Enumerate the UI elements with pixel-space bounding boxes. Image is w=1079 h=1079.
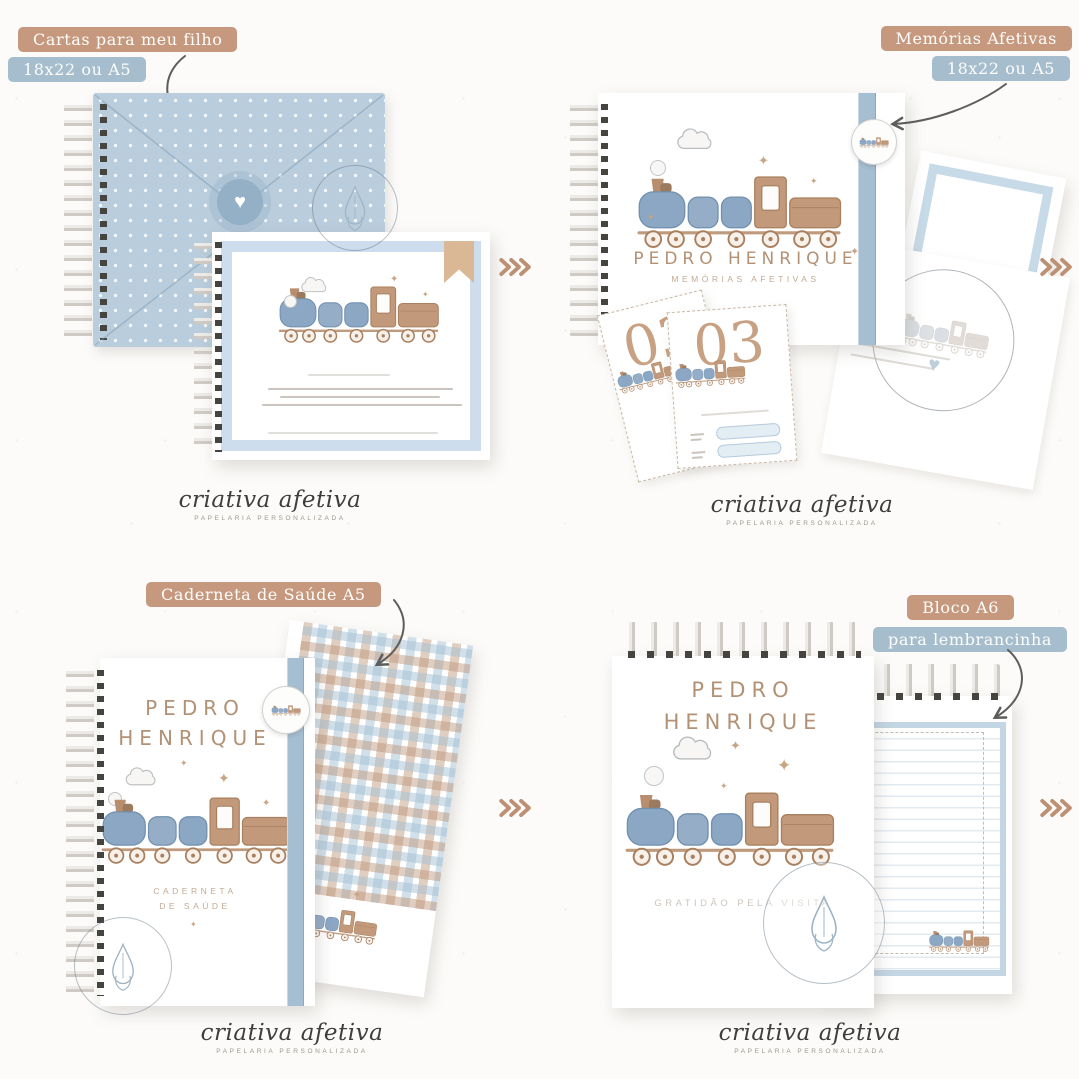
brand-logo: criativa afetiva [700,1020,920,1046]
product-showcase: Cartas para meu filho 18x22 ou A5 ♥ ✦ ✦ [0,0,1079,1079]
hand-arrow [980,645,1035,725]
smoke-puff [644,766,664,786]
panel-keepsake: PEDRO HENRIQUE ✦ ✦ ✦ GRATIDÃO PELA VISIT… [0,0,1079,1079]
cover-name-line2: HENRIQUE [612,710,874,734]
spiral-holes [625,651,861,658]
brand-tagline: PAPELARIA PERSONALIZADA [700,1048,920,1055]
star-icon: ✦ [777,756,791,776]
train-icon [928,928,990,954]
cloud-icon [668,735,720,764]
drop-logo-icon [804,893,844,953]
badge-keepsake-title: Bloco A6 [907,595,1014,620]
badge-keepsake-subtitle: para lembrancinha [873,627,1067,652]
triple-chevron-icon [1038,797,1072,819]
cover-name-line1: PEDRO [612,678,874,702]
star-icon: ✦ [730,738,741,754]
brand-logo-block: criativa afetiva PAPELARIA PERSONALIZADA [700,1020,920,1055]
train-illustration [622,784,837,874]
brand-watermark-circle [763,862,885,984]
